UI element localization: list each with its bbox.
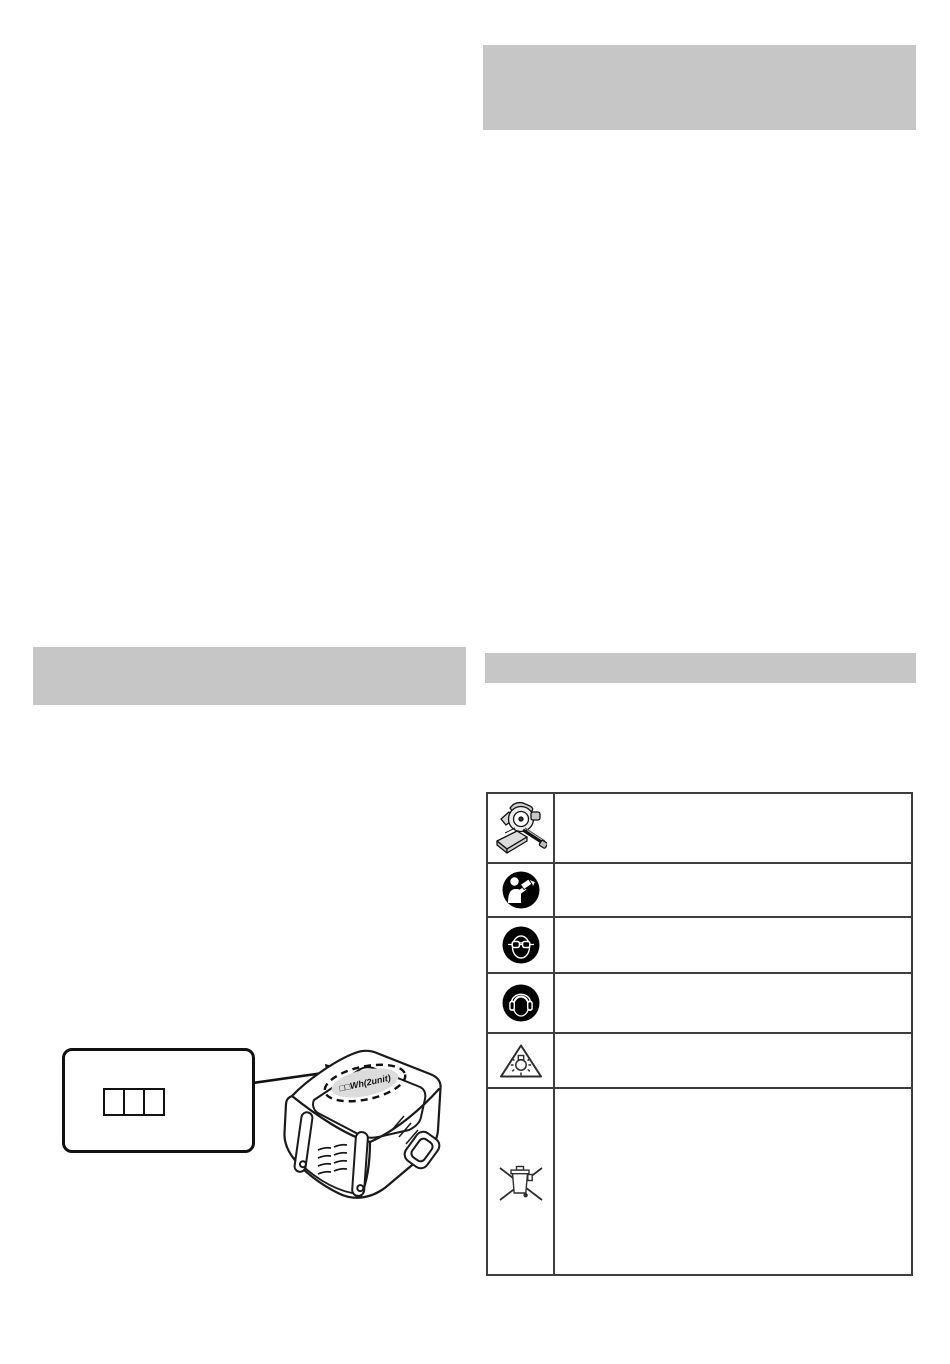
symbol-description — [555, 1089, 911, 1274]
symbol-description — [555, 918, 911, 972]
wh-digit-box — [103, 1088, 125, 1116]
symbol-description — [555, 794, 911, 862]
wh-digit-box — [143, 1088, 165, 1116]
table-row — [488, 1089, 911, 1274]
wh-digit-box — [123, 1088, 145, 1116]
bright-light-warning-icon — [498, 1042, 544, 1080]
symbol-description — [555, 1034, 911, 1087]
wh-digit-boxes — [103, 1088, 163, 1116]
symbol-description — [555, 974, 911, 1032]
symbol-table — [486, 792, 913, 1276]
section-bar-mid-right — [485, 653, 916, 683]
table-row — [488, 918, 911, 974]
symbol-description — [555, 864, 911, 916]
weee-crossed-out-bin-icon — [497, 1159, 545, 1205]
battery-pack-illustration: □□Wh(2unit) — [262, 1038, 457, 1213]
manual-page: □□Wh(2unit) — [0, 0, 950, 1364]
wh-callout-box — [62, 1048, 255, 1153]
miter-saw-icon — [495, 799, 547, 857]
table-row — [488, 974, 911, 1034]
section-bar-top-right — [483, 45, 916, 130]
read-manual-icon — [502, 871, 540, 909]
table-row — [488, 864, 911, 918]
table-row — [488, 1034, 911, 1089]
section-bar-mid-left — [33, 647, 466, 705]
eye-protection-icon — [502, 926, 540, 964]
ear-protection-icon — [502, 984, 540, 1022]
table-row — [488, 794, 911, 864]
